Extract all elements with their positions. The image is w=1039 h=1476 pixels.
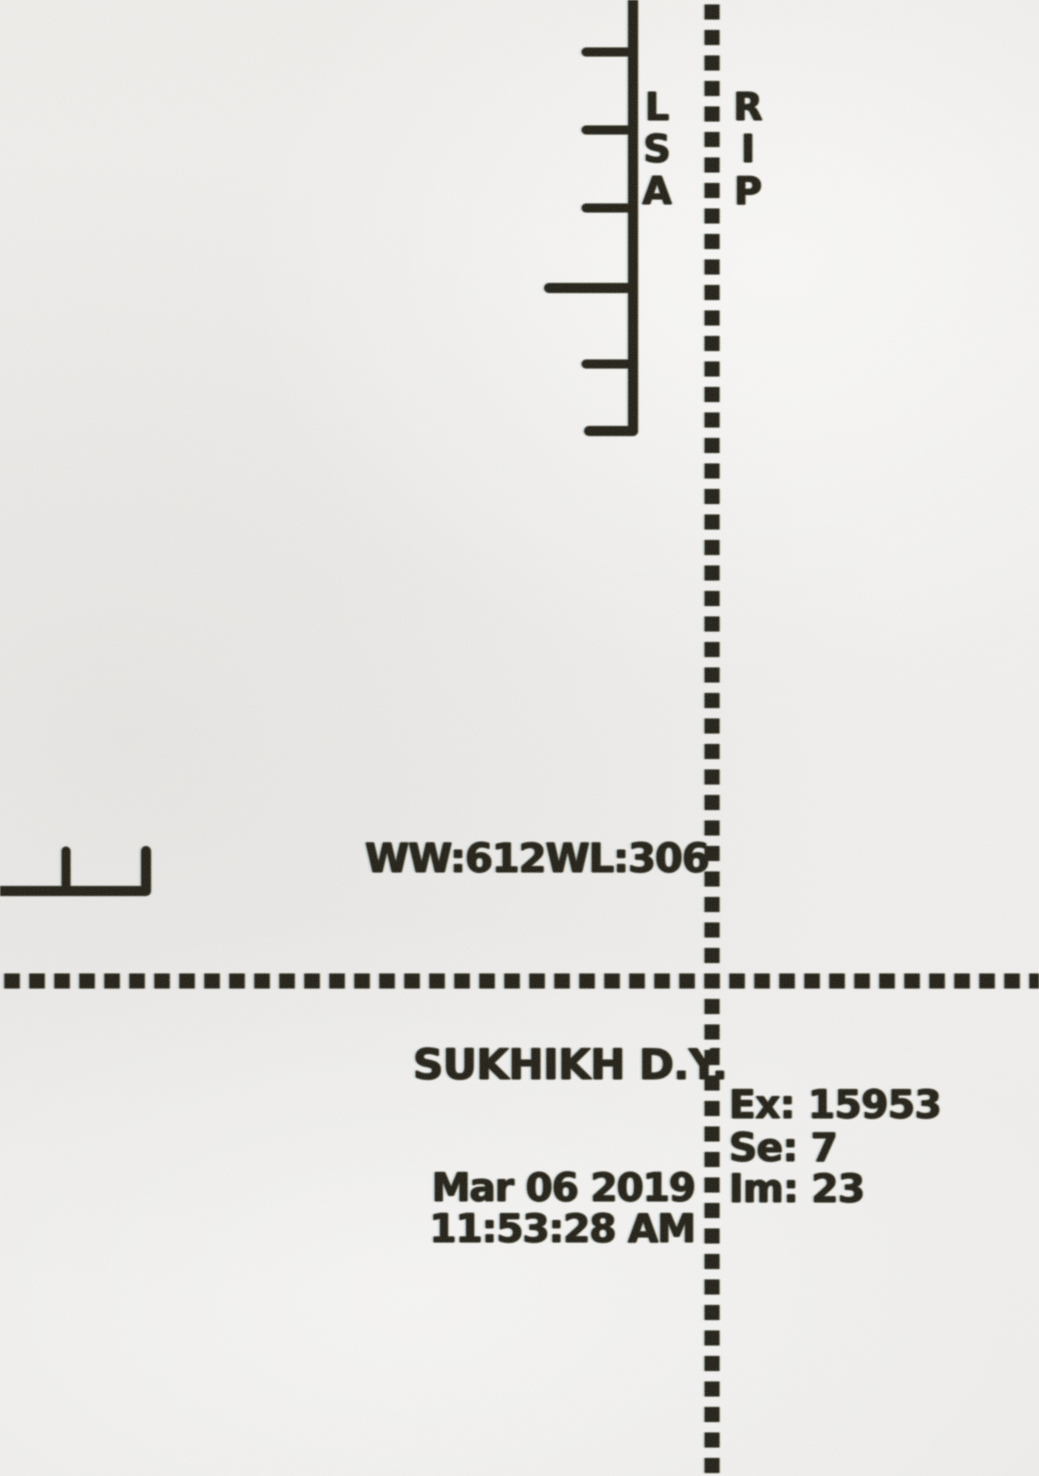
study-datetime-block: Mar 06 2019 11:53:28 AM xyxy=(295,1168,695,1250)
horizontal-scale-ruler-line xyxy=(0,851,146,891)
patient-name-label: SUKHIKH D.Y. xyxy=(413,1040,727,1089)
orientation-marker-p: P xyxy=(724,170,772,212)
orientation-marker-column-lsa: L S A xyxy=(633,86,681,212)
orientation-marker-l: L xyxy=(633,86,681,128)
study-time-label: 11:53:28 AM xyxy=(295,1209,695,1250)
series-number-label: Se: 7 xyxy=(729,1126,837,1171)
orientation-marker-r: R xyxy=(724,86,772,128)
orientation-marker-a: A xyxy=(633,170,681,212)
film-annotation-layer: L S A R I P WW:612WL:306 SUKHIKH D.Y. Ex… xyxy=(0,0,1039,1476)
exam-number-label: Ex: 15953 xyxy=(729,1083,941,1128)
image-number-label: Im: 23 xyxy=(729,1167,865,1212)
study-date-label: Mar 06 2019 xyxy=(295,1168,695,1209)
window-level-label: WW:612WL:306 xyxy=(365,836,709,882)
annotation-graphics xyxy=(0,0,1039,1476)
orientation-marker-column-rip: R I P xyxy=(724,86,772,212)
orientation-marker-i: I xyxy=(724,128,772,170)
orientation-marker-s: S xyxy=(633,128,681,170)
scout-film-view: L S A R I P WW:612WL:306 SUKHIKH D.Y. Ex… xyxy=(0,0,1039,1476)
